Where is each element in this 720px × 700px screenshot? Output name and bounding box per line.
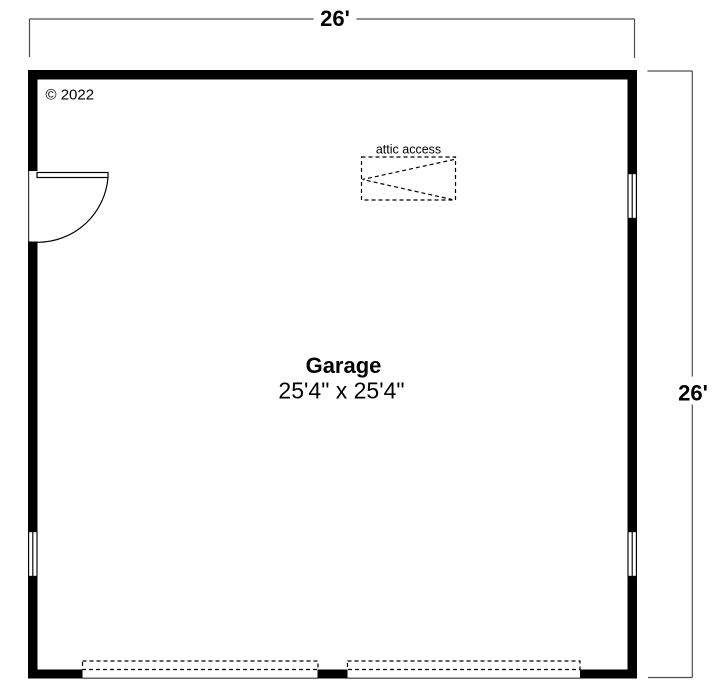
svg-text:26': 26' [320,6,350,31]
svg-text:Garage: Garage [306,353,382,378]
svg-text:26': 26' [678,381,708,406]
svg-text:© 2022: © 2022 [46,87,95,104]
svg-text:25'4" x 25'4": 25'4" x 25'4" [278,378,404,404]
svg-text:attic access: attic access [376,143,441,157]
